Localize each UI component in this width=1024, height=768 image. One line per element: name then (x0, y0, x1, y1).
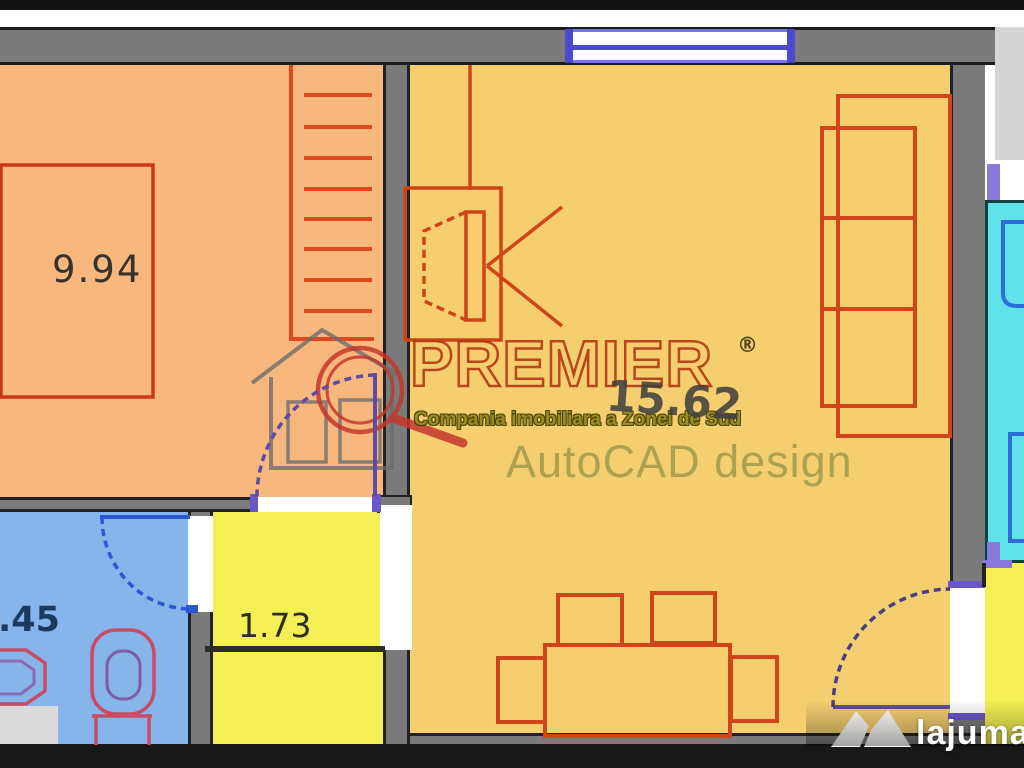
door-bathroom (100, 517, 190, 609)
tv-unit (405, 65, 562, 340)
room-area-label-hallway: 1.73 (238, 606, 311, 645)
sink (0, 650, 45, 704)
lajumate-watermark-name: lajumate (916, 714, 1024, 753)
room-area-label-living: 15.62 (604, 371, 743, 430)
room-area-label-bedroom: 9.94 (52, 248, 142, 291)
autocad-watermark: AutoCAD design (506, 436, 853, 488)
door-living-right (833, 589, 950, 707)
kitchen-counter (1003, 222, 1024, 541)
floor-plan-image: 9.94 PREMIER ® Compania imobiliara a Zon… (0, 0, 1024, 768)
lajumate-watermark: lajumate.ro (812, 714, 1024, 753)
toilet (92, 630, 154, 745)
room-area-label-bathroom: .45 (0, 600, 60, 640)
dining-table (498, 593, 777, 736)
radiator (291, 65, 374, 341)
bathtub-hint (0, 706, 58, 744)
sofa (822, 96, 950, 436)
window-frame-lines (565, 29, 795, 63)
door-bedroom (257, 373, 375, 497)
registered-trademark-icon: ® (737, 333, 758, 357)
